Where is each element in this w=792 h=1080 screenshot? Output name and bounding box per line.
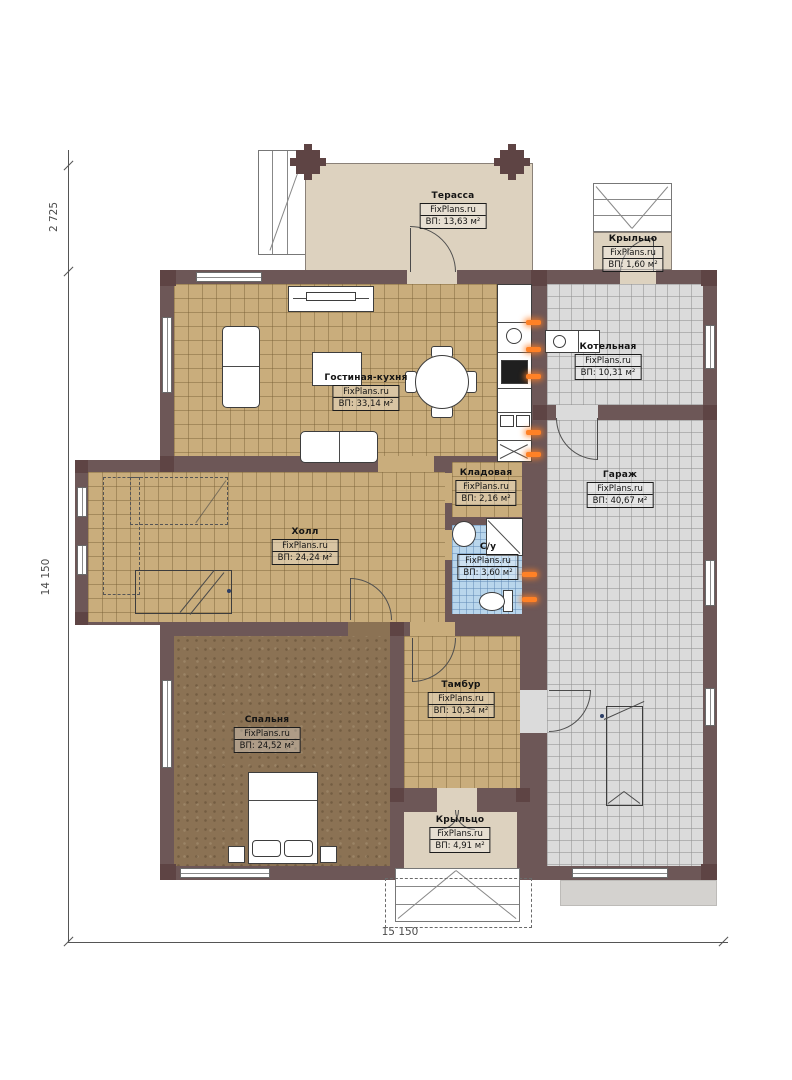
porch-top-door-gap	[620, 270, 656, 284]
window	[77, 487, 87, 517]
room-info-box: FixPlans.ru ВП: 40,67 м²	[587, 482, 654, 508]
dimension-terrace-depth: 2 725	[48, 187, 60, 247]
storage-door-gap	[445, 473, 452, 503]
room-info-box: FixPlans.ru ВП: 10,31 м²	[575, 354, 642, 380]
door-leaf	[350, 578, 351, 620]
bathroom-door-gap	[445, 530, 452, 560]
room-area: ВП: 1,60 м²	[603, 259, 662, 271]
radiator	[526, 347, 541, 352]
sofa	[222, 326, 260, 408]
room-label-garage: Гараж FixPlans.ru ВП: 40,67 м²	[587, 470, 654, 508]
toilet	[479, 592, 505, 611]
room-name: Гостиная-кухня	[324, 373, 407, 383]
boiler-burner	[553, 335, 566, 348]
room-name: Кладовая	[455, 468, 516, 478]
room-label-bedroom: Спальня FixPlans.ru ВП: 24,52 м²	[234, 715, 301, 753]
drawing-line	[498, 440, 531, 441]
drawing-line	[249, 800, 317, 801]
window	[180, 868, 270, 878]
watermark: FixPlans.ru	[430, 828, 489, 840]
room-name: Крыльцо	[429, 815, 490, 825]
window	[77, 545, 87, 575]
drawing-line	[498, 388, 531, 389]
window	[196, 272, 262, 282]
room-info-box: FixPlans.ru ВП: 4,91 м²	[429, 827, 490, 853]
room-label-bathroom: С/у FixPlans.ru ВП: 3,60 м²	[457, 542, 518, 580]
dimension-line-bottom	[68, 942, 728, 943]
wall-pier	[531, 270, 547, 286]
window	[162, 680, 172, 768]
door-leaf	[410, 228, 411, 272]
porch-top-steps	[593, 183, 672, 232]
wall-pier	[75, 460, 88, 473]
watermark: FixPlans.ru	[588, 483, 653, 495]
wall-pier	[703, 405, 717, 420]
room-info-box: FixPlans.ru ВП: 3,60 м²	[457, 554, 518, 580]
drawing-line	[594, 215, 671, 216]
window	[705, 325, 715, 369]
dimension-house-height: 14 150	[40, 547, 52, 607]
room-area: ВП: 24,24 м²	[273, 552, 338, 564]
wall-pier	[390, 788, 404, 802]
room-area: ВП: 33,14 м²	[334, 398, 399, 410]
door-leaf	[549, 690, 591, 691]
room-label-hall: Холл FixPlans.ru ВП: 24,24 м²	[272, 527, 339, 565]
cooktop	[501, 360, 528, 384]
room-area: ВП: 10,31 м²	[576, 367, 641, 379]
room-info-box: FixPlans.ru ВП: 13,63 м²	[420, 203, 487, 229]
watermark: FixPlans.ru	[603, 247, 662, 259]
drawing-line	[498, 352, 531, 353]
room-area: ВП: 24,52 м²	[235, 740, 300, 752]
appliance	[500, 415, 514, 427]
vestibule-garage-door-gap	[520, 690, 547, 733]
garage-apron	[560, 880, 717, 906]
nightstand	[228, 846, 245, 863]
fireplace-insert	[306, 292, 356, 301]
radiator	[526, 430, 541, 435]
living-hall-opening	[378, 456, 434, 472]
dining-table	[415, 355, 469, 409]
wall-pier	[160, 864, 176, 880]
wall-pier	[160, 456, 174, 472]
wall-pier	[160, 270, 176, 286]
room-label-vestibule: Тамбур FixPlans.ru ВП: 10,34 м²	[428, 680, 495, 718]
watermark: FixPlans.ru	[429, 693, 494, 705]
wall-pier	[75, 612, 88, 625]
drawing-line	[498, 412, 531, 413]
watermark: FixPlans.ru	[421, 204, 486, 216]
room-name: Гараж	[587, 470, 654, 480]
garage-gate	[572, 868, 668, 878]
canopy-outline	[385, 878, 532, 928]
room-label-living-kitchen: Гостиная-кухня FixPlans.ru ВП: 33,14 м²	[324, 373, 407, 411]
room-info-box: FixPlans.ru ВП: 10,34 м²	[428, 692, 495, 718]
nightstand	[320, 846, 337, 863]
wall-pier	[390, 622, 404, 636]
floor-plan-canvas: 2 725 14 150 15 150	[0, 0, 792, 1080]
room-name: Спальня	[234, 715, 301, 725]
terrace-door-gap	[407, 270, 457, 284]
room-info-box: FixPlans.ru ВП: 1,60 м²	[602, 246, 663, 272]
bedroom-door-gap	[348, 622, 392, 636]
room-name: Холл	[272, 527, 339, 537]
room-label-terrace: Терасса FixPlans.ru ВП: 13,63 м²	[420, 191, 487, 229]
room-area: ВП: 40,67 м²	[588, 495, 653, 507]
room-area: ВП: 13,63 м²	[421, 216, 486, 228]
room-label-storage: Кладовая FixPlans.ru ВП: 2,16 м²	[455, 468, 516, 506]
radiator	[526, 320, 541, 325]
pillow	[284, 840, 313, 857]
wall-pier	[701, 864, 717, 880]
hall-vestibule-door-gap	[410, 622, 455, 636]
drawing-line	[339, 432, 340, 462]
room-info-box: FixPlans.ru ВП: 24,52 м²	[234, 727, 301, 753]
wall-pier	[516, 788, 530, 802]
pillow	[252, 840, 281, 857]
room-area: ВП: 10,34 м²	[429, 705, 494, 717]
room-area: ВП: 3,60 м²	[458, 567, 517, 579]
watermark: FixPlans.ru	[235, 728, 300, 740]
terrace-column	[508, 144, 516, 180]
door-leaf	[412, 638, 413, 682]
boiler-garage-door-gap	[556, 405, 598, 420]
radiator	[522, 572, 537, 577]
room-area: ВП: 2,16 м²	[456, 493, 515, 505]
room-info-box: FixPlans.ru ВП: 24,24 м²	[272, 539, 339, 565]
hall-stairs-upper	[130, 477, 228, 525]
window	[705, 560, 715, 606]
window	[162, 317, 172, 393]
room-area: ВП: 4,91 м²	[430, 840, 489, 852]
room-name: Тамбур	[428, 680, 495, 690]
watermark: FixPlans.ru	[273, 540, 338, 552]
appliance	[516, 415, 530, 427]
room-name: Крыльцо	[602, 234, 663, 244]
drawing-line	[223, 366, 259, 367]
wall-pier	[701, 270, 717, 286]
watermark: FixPlans.ru	[334, 386, 399, 398]
room-name: С/у	[457, 542, 518, 552]
radiator	[526, 452, 541, 457]
wall-pier	[533, 405, 547, 420]
room-name: Котельная	[575, 342, 642, 352]
room-label-boiler: Котельная FixPlans.ru ВП: 10,31 м²	[575, 342, 642, 380]
radiator	[526, 374, 541, 379]
watermark: FixPlans.ru	[576, 355, 641, 367]
radiator	[522, 597, 537, 602]
door-leaf	[597, 418, 598, 460]
room-name: Терасса	[420, 191, 487, 201]
room-label-porch-bottom: Крыльцо FixPlans.ru ВП: 4,91 м²	[429, 815, 490, 853]
terrace-column	[304, 144, 312, 180]
stair-marker	[600, 714, 604, 718]
kitchen-sink	[506, 328, 522, 344]
room-label-porch-top: Крыльцо FixPlans.ru ВП: 1,60 м²	[602, 234, 663, 272]
window	[705, 688, 715, 726]
stair-marker	[227, 589, 231, 593]
watermark: FixPlans.ru	[456, 481, 515, 493]
room-info-box: FixPlans.ru ВП: 2,16 м²	[455, 480, 516, 506]
room-info-box: FixPlans.ru ВП: 33,14 м²	[333, 385, 400, 411]
watermark: FixPlans.ru	[458, 555, 517, 567]
vestibule-porch-door-gap	[437, 788, 477, 812]
